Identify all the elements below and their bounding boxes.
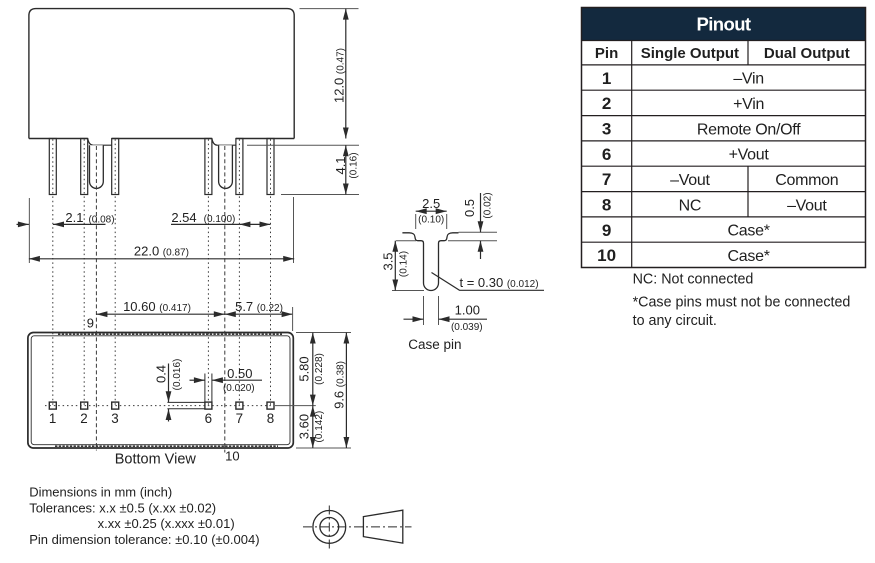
svg-text:+Vin: +Vin: [733, 96, 764, 113]
svg-text:1.00: 1.00: [455, 303, 480, 318]
svg-text:Bottom View: Bottom View: [115, 452, 197, 468]
svg-text:(0.039): (0.039): [451, 322, 483, 333]
svg-text:2: 2: [602, 94, 611, 113]
svg-text:Pin dimension tolerance: ±0.10: Pin dimension tolerance: ±0.10 (±0.004): [29, 532, 259, 547]
svg-text:(0.142): (0.142): [314, 411, 325, 443]
svg-text:Pin: Pin: [595, 45, 618, 62]
svg-text:3: 3: [111, 411, 118, 426]
svg-text:2.1: 2.1: [65, 210, 83, 225]
svg-text:(0.16): (0.16): [349, 152, 360, 178]
svg-text:9.6 (0.38): 9.6 (0.38): [332, 361, 347, 409]
svg-text:5.80: 5.80: [297, 356, 312, 381]
svg-text:7: 7: [602, 170, 611, 189]
svg-text:12.0 (0.47): 12.0 (0.47): [331, 48, 346, 103]
svg-text:(0.100): (0.100): [204, 214, 236, 225]
svg-text:6: 6: [205, 411, 212, 426]
svg-text:9: 9: [87, 315, 94, 330]
svg-text:(0.14): (0.14): [399, 251, 410, 277]
svg-text:x.xx ±0.25 (x.xxx ±0.01): x.xx ±0.25 (x.xxx ±0.01): [98, 516, 235, 531]
svg-text:4.1: 4.1: [333, 156, 348, 174]
svg-text:t = 0.30 (0.012): t = 0.30 (0.012): [460, 275, 539, 290]
svg-text:–Vout: –Vout: [787, 197, 827, 214]
svg-text:(0.228): (0.228): [314, 353, 325, 385]
svg-text:7: 7: [236, 411, 243, 426]
svg-text:–Vin: –Vin: [733, 71, 764, 88]
svg-text:Case*: Case*: [728, 223, 770, 240]
svg-text:9: 9: [602, 221, 611, 240]
svg-text:to any circuit.: to any circuit.: [633, 313, 717, 329]
svg-text:(0.02): (0.02): [482, 192, 493, 218]
svg-text:Common: Common: [775, 172, 838, 189]
svg-text:*Case pins must not be connect: *Case pins must not be connected: [633, 294, 851, 310]
svg-text:(0.016): (0.016): [172, 359, 183, 391]
svg-text:Case pin: Case pin: [408, 337, 461, 352]
svg-text:–Vout: –Vout: [670, 172, 710, 189]
svg-text:1: 1: [602, 69, 611, 88]
svg-text:(0.020): (0.020): [223, 383, 255, 394]
svg-text:3.5: 3.5: [380, 252, 395, 270]
svg-text:Remote On/Off: Remote On/Off: [697, 121, 801, 138]
svg-text:Tolerances: x.x ±0.5 (x.xx ±0.: Tolerances: x.x ±0.5 (x.xx ±0.02): [29, 500, 216, 515]
svg-text:3: 3: [602, 120, 611, 139]
svg-text:(0.10): (0.10): [418, 215, 444, 226]
svg-text:0.4: 0.4: [153, 365, 168, 383]
svg-text:10: 10: [225, 449, 239, 464]
svg-text:Single Output: Single Output: [641, 45, 739, 62]
svg-text:22.0 (0.87): 22.0 (0.87): [134, 243, 189, 258]
svg-text:2.5: 2.5: [422, 196, 440, 211]
svg-text:8: 8: [267, 411, 274, 426]
svg-text:0.50: 0.50: [227, 366, 252, 381]
svg-text:(0.08): (0.08): [88, 214, 114, 225]
svg-text:Dimensions in mm (inch): Dimensions in mm (inch): [29, 485, 172, 500]
svg-text:10.60 (0.417): 10.60 (0.417): [123, 299, 191, 314]
svg-text:2: 2: [80, 411, 87, 426]
svg-text:Dual Output: Dual Output: [764, 45, 850, 62]
svg-text:2.54: 2.54: [171, 210, 196, 225]
svg-text:3.60: 3.60: [297, 414, 312, 439]
svg-text:5.7 (0.22): 5.7 (0.22): [235, 299, 283, 314]
svg-text:Case*: Case*: [728, 248, 770, 265]
svg-text:1: 1: [49, 411, 56, 426]
svg-text:0.5: 0.5: [462, 199, 477, 217]
svg-text:NC: Not connected: NC: Not connected: [633, 271, 754, 287]
svg-text:+Vout: +Vout: [729, 147, 770, 164]
svg-text:8: 8: [602, 196, 611, 215]
svg-text:Pinout: Pinout: [697, 14, 751, 35]
svg-text:10: 10: [597, 246, 616, 265]
svg-text:6: 6: [602, 145, 611, 164]
svg-text:NC: NC: [679, 197, 702, 214]
